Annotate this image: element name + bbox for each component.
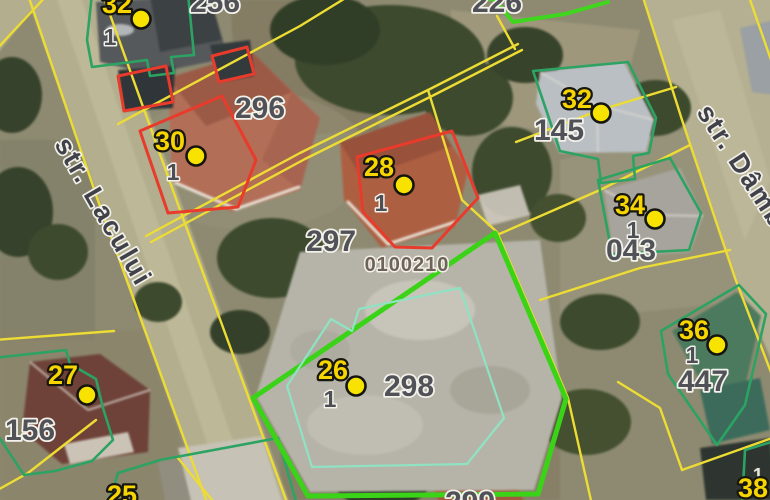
map-viewport[interactable]: 256 226 296 297 298 299 145 043 447 156 … xyxy=(0,0,770,500)
parcel-number-447: 447 xyxy=(678,365,728,398)
parcel-number-299: 299 xyxy=(445,486,495,500)
parcel-number-156: 156 xyxy=(5,414,55,447)
sub-number-36: 1 xyxy=(686,342,699,368)
tree-canopy xyxy=(560,294,640,350)
cadastral-map-svg: 256 226 296 297 298 299 145 043 447 156 … xyxy=(0,0,770,500)
sub-number-34: 1 xyxy=(627,217,640,243)
parcel-number-256: 256 xyxy=(190,0,240,19)
marker-dot-26[interactable] xyxy=(347,377,366,396)
parcel-number-297: 297 xyxy=(306,225,356,258)
house-number-30: 30 xyxy=(155,126,185,156)
house-number-28: 28 xyxy=(364,152,394,182)
tree-canopy xyxy=(134,282,182,322)
marker-dot-27[interactable] xyxy=(78,386,97,405)
marker-dot-30[interactable] xyxy=(187,147,206,166)
parcel-number-298: 298 xyxy=(384,370,434,403)
sub-number-tl32: 1 xyxy=(104,24,117,50)
parcel-number-296: 296 xyxy=(235,92,285,125)
marker-dot-28[interactable] xyxy=(395,176,414,195)
house-number-27: 27 xyxy=(48,360,78,390)
marker-dot-tl32[interactable] xyxy=(132,10,151,29)
house-number-tl32: 32 xyxy=(102,0,132,19)
house-number-26: 26 xyxy=(318,355,348,385)
marker-dot-36[interactable] xyxy=(708,336,727,355)
sub-number-30: 1 xyxy=(167,159,180,185)
house-number-r32: 32 xyxy=(562,84,592,114)
house-number-38: 38 xyxy=(738,473,768,500)
house-number-25: 25 xyxy=(107,480,137,500)
sub-number-28: 1 xyxy=(375,190,388,216)
parcel-number-145: 145 xyxy=(534,114,584,147)
house-number-36: 36 xyxy=(679,315,709,345)
parcel-number-226: 226 xyxy=(472,0,522,19)
house-number-34: 34 xyxy=(615,190,645,220)
sub-number-26: 1 xyxy=(324,386,337,412)
tree-canopy xyxy=(28,224,88,280)
marker-dot-34[interactable] xyxy=(646,210,665,229)
cadastral-id-label: 0100210 xyxy=(365,254,450,276)
marker-dot-r32[interactable] xyxy=(592,104,611,123)
